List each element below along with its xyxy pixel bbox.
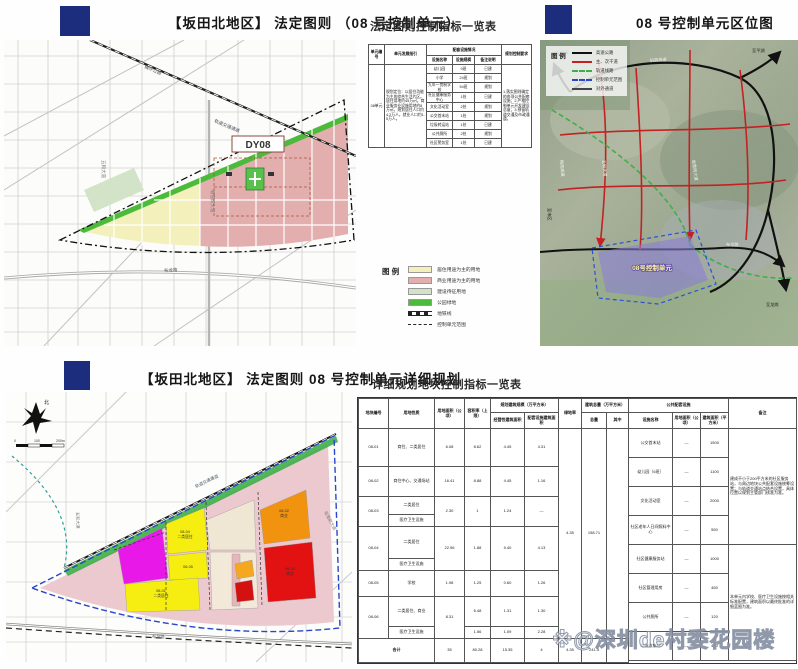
cell: 4.31	[525, 429, 559, 467]
cell: 1.56	[465, 627, 491, 639]
cell: 规划	[475, 112, 502, 121]
cell: 公交首末站	[629, 429, 673, 458]
cell: 设施规模	[453, 56, 475, 65]
cell: 商住、二类居住	[389, 429, 435, 467]
cell: 二类居住、商业	[389, 597, 435, 627]
cell: 1.25	[465, 571, 491, 597]
cell: 0.60	[491, 571, 525, 597]
cell: —	[673, 603, 701, 632]
cell: 本单元内学校、医疗卫生设施按相关标准配置，建筑面积以最终批准的详细蓝图为准。	[729, 545, 797, 661]
legend-item: 地铁线	[408, 310, 480, 317]
cell: 建筑总量（万平方米）	[582, 399, 629, 413]
cell: 设施名称	[629, 413, 673, 429]
legend-label: 对外通道	[596, 86, 614, 92]
plan-legend: 图 例 居住用途为主的用地商业用途为主的用地建设待征用地公园绿地地铁线控制单元范…	[382, 266, 532, 332]
cell: 4.13	[525, 527, 559, 571]
cell: 158.71	[582, 429, 607, 639]
cell: 已建	[475, 139, 502, 148]
cell: 1.落实图则确定的各项公共配套设施；2.严格控制单元开发建设总量；3.预留轨道交…	[502, 65, 532, 148]
marker-right	[268, 172, 274, 176]
title-marker-location	[545, 5, 572, 34]
cell: 550	[701, 516, 729, 545]
cell: 1100	[701, 458, 729, 487]
cell: 1.30	[525, 597, 559, 627]
cell: 经营性建筑面积	[491, 413, 525, 429]
cell: 配套设施情况	[427, 45, 502, 56]
legend-swatch-line	[572, 52, 592, 55]
cell: 4.45	[491, 429, 525, 467]
cell: 规划	[475, 74, 502, 83]
cell: 8.88	[465, 467, 491, 497]
cell: 文化活动室	[427, 103, 453, 112]
cell: 社区警务室	[427, 139, 453, 148]
legend-item: 商业用途为主的用地	[408, 277, 480, 284]
cell: 备注	[729, 399, 797, 429]
marker-left	[226, 172, 232, 176]
legend-swatch-box	[408, 277, 432, 284]
cell: 80.28	[465, 639, 491, 663]
cell: 1.26	[525, 571, 559, 597]
legend-item: 轨道线路	[572, 68, 622, 74]
plot-red-small	[235, 580, 254, 602]
cell: 6.08	[435, 429, 465, 467]
page: 【坂田北地区】 法定图则 （08 号控制单元） 法定图则控制指标一览表 08 号…	[0, 0, 798, 669]
cell: 医疗卫生设施	[389, 515, 435, 527]
cell: 规划	[475, 103, 502, 112]
direction-label: 至龙岗	[766, 301, 779, 308]
cell: 规划	[475, 130, 502, 139]
cell: 9班	[453, 65, 475, 74]
cell: 其中	[607, 413, 629, 429]
svg-text:商业: 商业	[286, 571, 294, 576]
cell: 医疗卫生设施	[389, 559, 435, 571]
cell: 450	[701, 574, 729, 603]
legend-label: 控制单元范围	[437, 321, 466, 328]
cell: —	[673, 516, 701, 545]
legend-item: 公园绿地	[408, 299, 480, 306]
direction-label: 至平湖	[752, 47, 765, 54]
legend-label: 主、次干道	[596, 59, 618, 65]
cell: 1处	[453, 139, 475, 148]
cell: 1000	[701, 545, 729, 574]
cell: 1处	[453, 121, 475, 130]
cell: 学校	[389, 571, 435, 597]
legend-label: 建设待征用地	[437, 288, 466, 295]
cell: 4.35	[559, 639, 582, 663]
cell: 16.41	[435, 467, 465, 497]
detail-table: 地块编号用地性质用地面积（公顷）容积率（上限）规划建筑规模（万平方米）绿地率建筑…	[357, 397, 797, 664]
cell: 垃圾收集站	[629, 632, 673, 661]
legend-label: 地铁线	[437, 310, 451, 317]
svg-text:08-01: 08-01	[156, 589, 166, 593]
cell: 4	[525, 639, 559, 663]
cell: —	[525, 497, 559, 527]
cell: 建成不小于200平方米的社区服务站，与周边地块公共配套设施统筹设置；与轨道交通站…	[729, 429, 797, 545]
cell: 1处	[453, 112, 475, 121]
legend-title: 图 例	[551, 50, 566, 95]
cell: 400	[701, 632, 729, 661]
legend-item: 建设待征用地	[408, 288, 480, 295]
cell: 小学	[427, 74, 453, 83]
cell: 商住中心、交通场站	[389, 467, 435, 497]
svg-text:08-04: 08-04	[180, 530, 190, 534]
detail-table-left: 地块编号用地性质用地面积（公顷）容积率（上限）规划建筑规模（万平方米）绿地率建筑…	[358, 398, 628, 663]
cell: 公共配套设施	[629, 399, 729, 413]
cell: 二类居住	[389, 497, 435, 515]
cell: 规划	[475, 83, 502, 93]
north-label: 北	[44, 399, 49, 406]
control-unit-label: 08号控制单元	[632, 263, 672, 272]
legend-items: 高速公路主、次干道轨道线路控制单元范围对外通道	[572, 50, 622, 95]
cell: 4.45	[491, 467, 525, 497]
legend-swatch-rail	[408, 311, 432, 316]
cell: 公共厕所	[427, 130, 453, 139]
cell: 社区健康服务中心	[427, 93, 453, 103]
cell: 08-04	[359, 527, 389, 571]
legend-swatch-line	[572, 61, 592, 64]
legend-swatch-dash	[572, 70, 592, 72]
cell: 单元编号	[369, 45, 385, 65]
cell: —	[673, 458, 701, 487]
cell: 241.3	[582, 639, 607, 663]
legend-label: 控制单元范围	[596, 77, 622, 83]
location-legend: 图 例 高速公路主、次干道轨道线路控制单元范围对外通道	[546, 46, 627, 96]
svg-text:200m: 200m	[56, 439, 65, 443]
cell: —	[673, 545, 701, 574]
cell: 08-03	[359, 497, 389, 527]
cell: 22.96	[435, 527, 465, 571]
plan-map: DY08 横坪公路 轨道交通通道 坂雪岗大道 五和大道 布龙路	[4, 40, 356, 346]
cell: 垃圾转运站	[427, 121, 453, 130]
cell: 6.48	[465, 597, 491, 627]
cell: 建筑面积（平方米）	[701, 413, 729, 429]
cell: 2.30	[435, 497, 465, 527]
cell: 绿地率	[559, 399, 582, 429]
cell: 已建	[475, 121, 502, 130]
cell: 容积率（上限）	[465, 399, 491, 429]
cell: 54班	[453, 83, 475, 93]
legend-item: 控制单元范围	[408, 321, 480, 328]
cell: 规划定位：以居住功能为主的综合生活片区。居住用地约45万㎡，商业服务业设施用地约…	[385, 65, 427, 148]
cell: 1.16	[525, 467, 559, 497]
index-table: 单元编号单元发展指引配套设施情况规划控制要求设施名称设施规模备注说明08单元规划…	[368, 44, 531, 148]
cell: 2000	[701, 487, 729, 516]
cell: —	[673, 632, 701, 661]
detail-map: 北 0 100 200m	[6, 392, 352, 662]
cell: 35	[435, 639, 465, 663]
cell: 社区健康服务站	[629, 545, 673, 574]
title-marker-plan	[60, 6, 90, 36]
cell: 公共厕所	[629, 603, 673, 632]
cell: 1.98	[435, 571, 465, 597]
detail-table-title: 详细规划地块控制指标一览表	[372, 376, 522, 392]
cell: 08-06	[359, 597, 389, 639]
svg-text:二类居住: 二类居住	[177, 534, 192, 539]
cell: 1	[465, 497, 491, 527]
cell: 已建	[475, 65, 502, 74]
legend-swatch-dash	[572, 79, 592, 81]
cell: 1.31	[491, 597, 525, 627]
cell: 1处	[453, 93, 475, 103]
cell: —	[673, 574, 701, 603]
cell: 社区老年人日间照料中心	[629, 516, 673, 545]
cell: 08-02	[359, 467, 389, 497]
svg-text:08-03: 08-03	[285, 567, 295, 571]
cell: 二类居住	[389, 527, 435, 559]
road-label: 五和大道	[100, 160, 107, 178]
cell: 总量	[582, 413, 607, 429]
cell: 规划控制要求	[502, 45, 532, 65]
legend-label: 高速公路	[596, 50, 614, 56]
dy08-label: DY08	[245, 140, 270, 151]
legend-swatch-dashdot	[408, 324, 432, 325]
cell: 08单元	[369, 65, 385, 148]
cell: 设施名称	[427, 56, 453, 65]
cell: 1.24	[491, 497, 525, 527]
road-label: 坂雪岗大道	[209, 190, 216, 213]
legend-label: 公园绿地	[437, 299, 456, 306]
cell: 备注说明	[475, 56, 502, 65]
cell: 120	[701, 603, 729, 632]
cell: 用地面积（公顷）	[435, 399, 465, 429]
direction-label: 至市区	[546, 208, 553, 221]
cell: 08-05	[359, 571, 389, 597]
svg-text:商业: 商业	[280, 513, 288, 518]
cell: 1.88	[465, 527, 491, 571]
legend-label: 轨道线路	[596, 68, 614, 74]
legend-item: 高速公路	[572, 50, 622, 56]
cell: 15.35	[491, 639, 525, 663]
cell: 1.09	[491, 627, 525, 639]
detail-table-right: 公共配套设施备注设施名称用地面积（公顷）建筑面积（平方米）公交首末站—1500建…	[628, 398, 796, 663]
cell: 公交首末站	[427, 112, 453, 121]
svg-text:0: 0	[14, 439, 16, 443]
svg-text:08-02: 08-02	[279, 509, 289, 513]
cell	[607, 429, 629, 639]
cell: 9.40	[491, 527, 525, 571]
legend-items: 居住用途为主的用地商业用途为主的用地建设待征用地公园绿地地铁线控制单元范围	[408, 266, 480, 332]
cell: 用地性质	[389, 399, 435, 429]
svg-text:100: 100	[34, 439, 40, 443]
legend-label: 商业用途为主的用地	[437, 277, 480, 284]
cell: 2处	[453, 130, 475, 139]
cell: 2处	[453, 103, 475, 112]
cell: 24班	[453, 74, 475, 83]
cell: 社区管理用房	[629, 574, 673, 603]
legend-item: 主、次干道	[572, 59, 622, 65]
cell: 幼儿园	[427, 65, 453, 74]
legend-item: 控制单元范围	[572, 77, 622, 83]
cell: 九年一贯制学校	[427, 83, 453, 93]
cell: 08-01	[359, 429, 389, 467]
cell: 配套设施建筑面积	[525, 413, 559, 429]
cell: 单元发展指引	[385, 45, 427, 65]
cell	[607, 639, 629, 663]
cell: 8.62	[465, 429, 491, 467]
legend-label: 居住用途为主的用地	[437, 266, 480, 273]
cell: 合计	[359, 639, 435, 663]
cell: 医疗卫生设施	[389, 627, 435, 639]
cell: 用地面积（公顷）	[673, 413, 701, 429]
legend-item: 居住用途为主的用地	[408, 266, 480, 273]
title-marker-detail	[64, 361, 90, 390]
cell: 8.31	[435, 597, 465, 639]
location-title: 08 号控制单元区位图	[636, 12, 774, 32]
cell: 4.35	[559, 429, 582, 639]
road-label: 布龙路	[152, 633, 165, 640]
cell: 1500	[701, 429, 729, 458]
cell: 文化活动室	[629, 487, 673, 516]
cell: 幼儿园（6班）	[629, 458, 673, 487]
legend-swatch-line	[572, 88, 592, 91]
cell: —	[673, 487, 701, 516]
svg-text:08-05: 08-05	[183, 565, 193, 569]
cell: 地块编号	[359, 399, 389, 429]
legend-swatch-box	[408, 266, 432, 273]
legend-swatch-box	[408, 299, 432, 306]
cell: 2.28	[525, 627, 559, 639]
cell: —	[673, 429, 701, 458]
cell: 规划建筑规模（万平方米）	[491, 399, 559, 413]
index-table-title: 法定图则控制指标一览表	[370, 18, 497, 34]
legend-swatch-box	[408, 288, 432, 295]
svg-text:二类居住: 二类居住	[153, 593, 168, 598]
road-label: 布龙路	[726, 241, 739, 248]
legend-title: 图 例	[382, 266, 399, 332]
legend-item: 对外通道	[572, 86, 622, 92]
cell: 已建	[475, 93, 502, 103]
